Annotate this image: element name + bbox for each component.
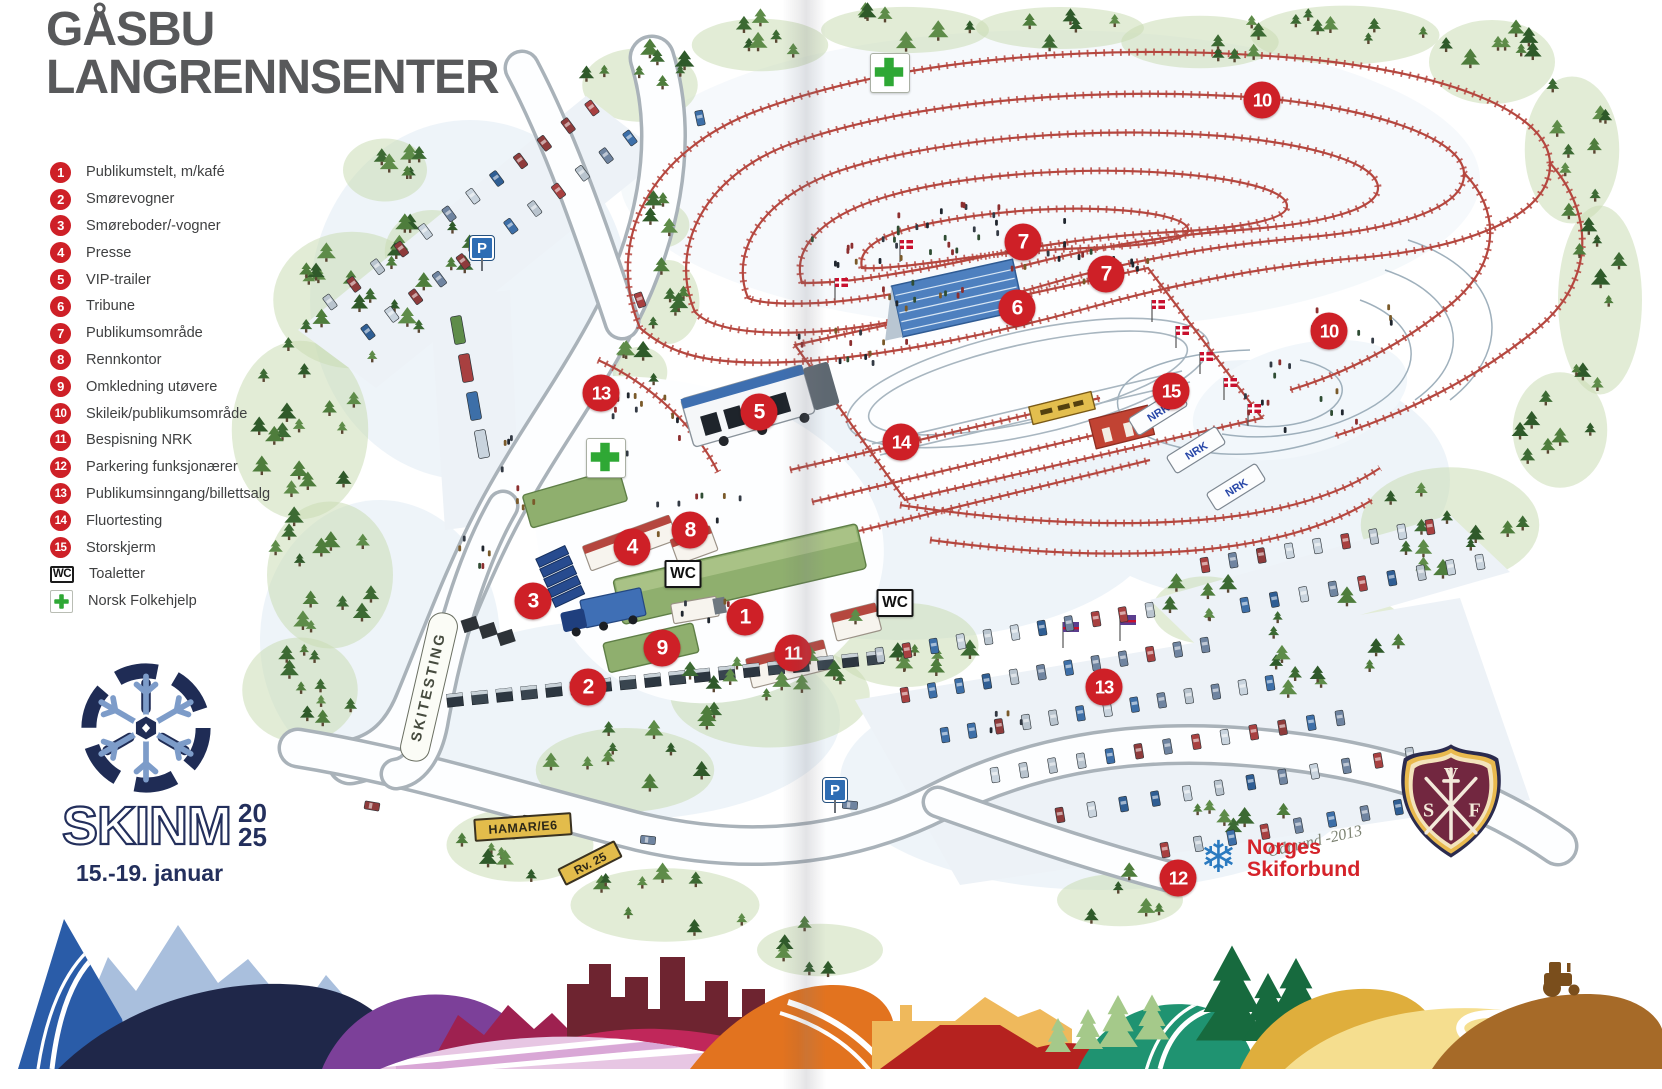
crest-letter-v: V [1444, 764, 1459, 786]
legend-item: 1Publikumstelt, m/kafé [50, 159, 270, 186]
legend-item: WCToaletter [50, 561, 270, 588]
map-marker-13: 13 [1086, 669, 1123, 706]
legend-label: Parkering funksjonærer [86, 459, 238, 475]
legend-label: Omkledning utøvere [86, 379, 217, 395]
crest-letter-f: F [1468, 799, 1480, 821]
legend-item: 2Smørevogner [50, 186, 270, 213]
legend-item: 14Fluortesting [50, 507, 270, 534]
wc-sign: WC [877, 589, 914, 617]
map-marker-12: 12 [1160, 860, 1197, 897]
legend-number-badge: 11 [50, 430, 71, 451]
brochure-page: NRK NRK NRK [0, 0, 1662, 1089]
map-marker-15: 15 [1153, 373, 1190, 410]
map-marker-14: 14 [883, 424, 920, 461]
legend-number-badge: 7 [50, 323, 71, 344]
event-dates: 15.-19. januar [76, 860, 322, 887]
legend-number-badge: 14 [50, 510, 71, 531]
legend-item: 13Publikumsinngang/billettsalg [50, 481, 270, 508]
legend-label: Rennkontor [86, 352, 161, 368]
map-marker-8: 8 [672, 512, 709, 549]
map-marker-2: 2 [570, 669, 607, 706]
legend-label: Publikumsområde [86, 325, 203, 341]
legend-number-badge: 15 [50, 537, 71, 558]
legend-label: Fluortesting [86, 513, 162, 529]
legend-label: Publikumstelt, m/kafé [86, 164, 225, 180]
legend-label: Skileik/publikumsområde [86, 406, 247, 422]
legend-number-badge: 6 [50, 296, 71, 317]
legend-label: Storskjerm [86, 540, 156, 556]
legend-label: VIP-trailer [86, 272, 151, 288]
wc-sign: WC [665, 560, 702, 588]
legend-item: 6Tribune [50, 293, 270, 320]
map-marker-7: 7 [1005, 224, 1042, 261]
nsf-logo-line2: Skiforbund [1247, 858, 1360, 880]
map-marker-10: 10 [1311, 313, 1348, 350]
legend-item: 12Parkering funksjonærer [50, 454, 270, 481]
map-marker-7: 7 [1088, 256, 1125, 293]
nsf-logo-line1: Norges [1247, 836, 1360, 858]
legend-number-badge: 4 [50, 242, 71, 263]
page-title-line1: GÅSBU [46, 6, 499, 54]
parking-sign: P [470, 236, 494, 260]
page-title: GÅSBU LANGRENNSENTER [46, 6, 499, 101]
map-marker-13: 13 [583, 375, 620, 412]
legend-number-badge: 8 [50, 349, 71, 370]
page-title-line2: LANGRENNSENTER [46, 54, 499, 102]
map-marker-5: 5 [741, 394, 778, 431]
event-name: SKINM [62, 802, 231, 851]
legend-item: 4Presse [50, 239, 270, 266]
legend-item: 11Bespisning NRK [50, 427, 270, 454]
legend-item: 3Smøreboder/-vogner [50, 213, 270, 240]
nsf-snowflake-icon: ❄ [1200, 836, 1237, 880]
legend-number-badge: 1 [50, 162, 71, 183]
legend-number-badge: 12 [50, 457, 71, 478]
legend-number-badge: 10 [50, 403, 71, 424]
legend-number-badge: 3 [50, 215, 71, 236]
wc-icon: WC [50, 566, 74, 583]
map-marker-11: 11 [775, 635, 812, 672]
legend-number-badge: 2 [50, 189, 71, 210]
first-aid-sign [870, 53, 910, 93]
crest-letter-s: S [1423, 799, 1434, 821]
event-year: 20 25 [238, 802, 267, 850]
legend-number-badge: 13 [50, 483, 71, 504]
map-marker-4: 4 [614, 529, 651, 566]
event-logo: SKINM 20 25 15.-19. januar [62, 660, 322, 887]
legend-item: 8Rennkontor [50, 347, 270, 374]
legend-label: Presse [86, 245, 131, 261]
legend-item: 10Skileik/publikumsområde [50, 400, 270, 427]
norges-skiforbund-logo: ❄ Norges Skiforbund [1200, 836, 1360, 881]
legend-label: Tribune [86, 298, 135, 314]
legend-label: Smørevogner [86, 191, 174, 207]
legend-item: 5VIP-trailer [50, 266, 270, 293]
legend-label: Smøreboder/-vogner [86, 218, 221, 234]
parking-sign: P [823, 778, 847, 802]
legend-label: Bespisning NRK [86, 432, 192, 448]
first-aid-icon [50, 590, 73, 613]
first-aid-sign [586, 438, 626, 478]
map-marker-1: 1 [727, 599, 764, 636]
map-marker-6: 6 [999, 290, 1036, 327]
map-marker-3: 3 [515, 583, 552, 620]
legend-label: Toaletter [89, 566, 145, 582]
legend-item: Norsk Folkehjelp [50, 588, 270, 615]
legend-number-badge: 5 [50, 269, 71, 290]
legend: 1Publikumstelt, m/kafé2Smørevogner3Smøre… [50, 159, 270, 615]
nsf-logo-text: Norges Skiforbund [1247, 836, 1360, 881]
map-marker-10: 10 [1244, 82, 1281, 119]
club-crest: V S F [1392, 742, 1510, 860]
event-wordmark: SKINM 20 25 [62, 802, 322, 851]
snowflake-logo-icon [78, 660, 214, 796]
legend-label: Publikumsinngang/billettsalg [86, 486, 270, 502]
legend-item: 9Omkledning utøvere [50, 373, 270, 400]
legend-number-badge: 9 [50, 376, 71, 397]
map-marker-9: 9 [644, 630, 681, 667]
legend-item: 7Publikumsområde [50, 320, 270, 347]
event-year-bottom: 25 [238, 826, 267, 850]
legend-label: Norsk Folkehjelp [88, 593, 197, 609]
legend-item: 15Storskjerm [50, 534, 270, 561]
